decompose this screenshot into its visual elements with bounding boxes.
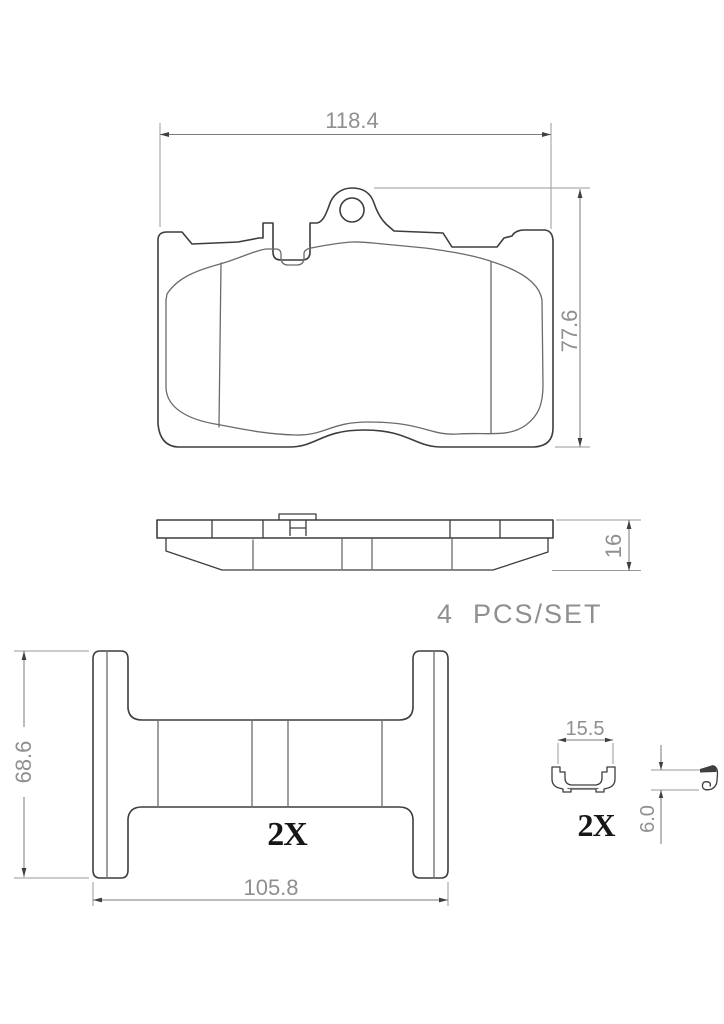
arrow-up-icon	[627, 520, 632, 529]
dim-clip-height-value: 6.0	[637, 805, 659, 833]
arrow-down-icon	[659, 762, 663, 770]
arrow-up-icon	[659, 790, 663, 798]
arrow-right-icon	[439, 898, 448, 903]
pad-backplate-outline	[158, 188, 553, 447]
arrow-up-icon	[578, 189, 583, 198]
dim-clip-width: 15.5	[558, 718, 613, 764]
dim-shim-width: 105.8	[93, 875, 448, 906]
arrow-down-icon	[627, 562, 632, 571]
arrow-left-icon	[160, 132, 169, 137]
arrow-left-icon	[93, 898, 102, 903]
dim-pad-height-value: 77.6	[557, 310, 582, 353]
pcs-per-set-label: 4 PCS/SET	[437, 599, 603, 629]
shim-view: 2X	[93, 651, 448, 878]
arrow-right-icon	[605, 738, 613, 742]
technical-drawing-canvas: 118.4 77.6 16 4 PCS/SET	[0, 0, 724, 1024]
dim-pad-height: 77.6	[374, 188, 590, 447]
dim-clip-width-value: 15.5	[566, 718, 605, 740]
side-backplate	[157, 520, 553, 538]
friction-pad-outline	[166, 242, 543, 435]
arrow-down-icon	[22, 868, 27, 877]
friction-chamfer-left	[219, 263, 221, 427]
side-friction	[166, 538, 548, 570]
side-tab	[279, 514, 316, 520]
dim-shim-height-value: 68.6	[11, 741, 36, 784]
mount-hole	[340, 198, 364, 222]
dim-clip-height: 6.0	[637, 745, 700, 844]
clip-front-view: 2X	[552, 767, 615, 843]
dim-pad-thickness: 16	[552, 520, 641, 571]
arrow-down-icon	[578, 438, 583, 447]
side-tab-inner	[290, 520, 306, 536]
arrow-right-icon	[542, 132, 551, 137]
dim-thickness-value: 16	[601, 534, 626, 558]
arrow-up-icon	[22, 651, 27, 660]
clip-side-view	[700, 765, 718, 790]
pad-side-view	[157, 514, 553, 570]
clip-quantity-label: 2X	[577, 807, 615, 843]
dim-pad-width-value: 118.4	[325, 108, 378, 133]
shim-quantity-label: 2X	[267, 816, 308, 853]
dim-pad-width: 118.4	[160, 108, 551, 229]
dim-shim-height: 68.6	[11, 651, 89, 878]
dim-shim-width-value: 105.8	[243, 875, 298, 900]
pad-front-view	[158, 188, 553, 447]
